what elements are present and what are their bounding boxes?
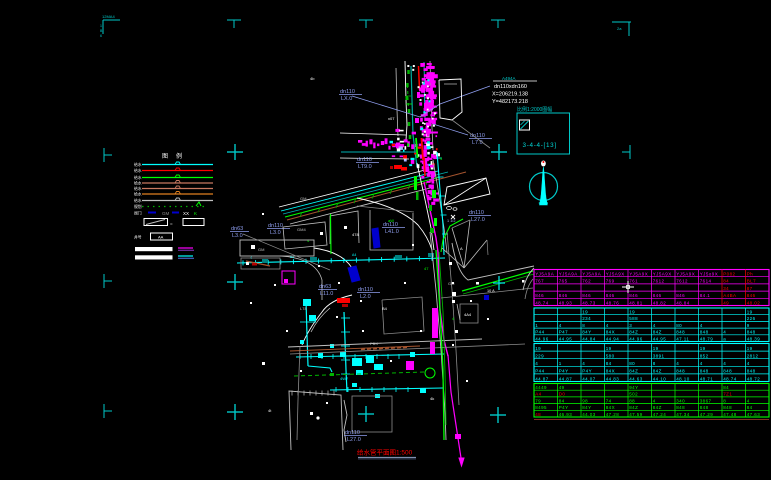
svg-text:3867: 3867 [700,398,712,403]
svg-text:94Y: 94Y [629,385,638,390]
svg-text:48.81: 48.81 [629,300,643,305]
svg-text:44.87: 44.87 [559,376,573,381]
svg-text:340: 340 [676,398,685,403]
svg-text:给水: 给水 [134,162,142,167]
svg-text:L27.0: L27.0 [347,437,361,443]
svg-text:1 1/2: 1 1/2 [447,219,455,223]
svg-text:=: = [170,221,173,226]
svg-text:848: 848 [700,405,709,410]
svg-text:4: 4 [723,361,726,366]
svg-text:47.59: 47.59 [629,412,643,417]
svg-text:7612: 7612 [653,279,665,284]
svg-text:Y=482173.218: Y=482173.218 [492,99,528,105]
svg-text:19: 19 [582,310,588,315]
svg-text:1: 1 [535,323,538,328]
svg-text:478: 478 [352,232,359,237]
svg-text:19: 19 [700,346,706,351]
svg-text:48.39: 48.39 [747,336,761,341]
svg-text:44.95: 44.95 [653,336,667,341]
svg-text:4: 4 [606,323,609,328]
svg-text:8: 8 [653,361,656,366]
svg-text:44.84: 44.84 [582,336,596,341]
svg-text:769: 769 [606,279,615,284]
svg-text:848: 848 [676,330,685,335]
svg-text:YJ5A9X: YJ5A9X [606,272,625,277]
svg-text:YJ5A9A: YJ5A9A [535,272,554,277]
svg-text:4: 4 [747,398,750,403]
svg-text:19: 19 [535,346,541,351]
svg-text:GM4: GM4 [297,227,306,232]
svg-text:48.84: 48.84 [676,300,690,305]
svg-text:12MA4: 12MA4 [102,14,115,19]
svg-text:4: 4 [582,361,585,366]
svg-text:dn110: dn110 [469,210,484,216]
svg-text:P4Y: P4Y [559,369,569,374]
svg-text:dn63: dn63 [319,284,331,290]
svg-text:4W7: 4W7 [340,376,349,381]
svg-text:BL7: BL7 [747,279,756,284]
svg-text:A4BA: A4BA [723,293,736,298]
svg-text:4k: 4k [430,396,434,401]
svg-text:K: K [194,211,197,216]
svg-text:aW: aW [388,218,394,223]
svg-text:GM: GM [300,196,306,201]
svg-text:47.63: 47.63 [747,412,761,417]
svg-text:L27.0: L27.0 [471,217,485,223]
svg-text:8: 8 [723,398,726,403]
svg-text:84: 84 [606,361,612,366]
svg-text:19: 19 [653,346,659,351]
svg-text:846: 846 [747,293,756,298]
svg-text:84Y: 84Y [582,330,591,335]
svg-text:L3.0: L3.0 [270,230,281,236]
svg-text:588: 588 [629,316,638,321]
svg-text:YJ5A9X: YJ5A9X [629,272,648,277]
svg-text:给水: 给水 [134,168,142,173]
svg-text:848: 848 [700,330,709,335]
svg-text:7614: 7614 [700,279,712,284]
svg-text:846: 846 [582,293,591,298]
svg-text:比例1:2000图幅: 比例1:2000图幅 [517,106,552,113]
svg-text:848: 848 [700,369,709,374]
svg-text:4: 4 [559,323,562,328]
svg-text:48.73: 48.73 [582,300,596,305]
svg-text:A4: A4 [535,392,541,397]
svg-text:765: 765 [559,279,568,284]
svg-text:848: 848 [747,330,756,335]
svg-text:848: 848 [676,405,685,410]
svg-text:34: 34 [723,286,729,291]
svg-text:19: 19 [629,310,635,315]
svg-text:48.71: 48.71 [700,376,714,381]
svg-text:给水: 给水 [134,198,142,203]
svg-text:229: 229 [535,354,544,359]
svg-text:44.83: 44.83 [606,376,620,381]
svg-text:井号: 井号 [134,235,142,240]
svg-text:848: 848 [723,369,732,374]
svg-text:给水: 给水 [134,181,142,186]
svg-text:44.96: 44.96 [535,336,549,341]
svg-text:规划: 规划 [134,204,142,209]
svg-text:B4: B4 [382,306,388,311]
svg-text:84: 84 [747,405,753,410]
svg-text:给水: 给水 [134,175,142,180]
svg-text:44.87: 44.87 [535,376,549,381]
svg-text:852: 852 [700,354,709,359]
svg-text:44.96: 44.96 [629,336,643,341]
svg-text:4449: 4449 [535,385,547,390]
svg-text:L11.0: L11.0 [320,291,333,297]
svg-text:98: 98 [582,398,588,403]
svg-text:X=206219.138: X=206219.138 [492,92,528,98]
svg-text:84: 84 [723,279,729,284]
svg-text:P44: P44 [535,330,544,335]
svg-text:84: 84 [559,398,565,403]
svg-text:84X: 84X [606,369,615,374]
svg-text:L2.0: L2.0 [360,294,371,300]
svg-text:762: 762 [582,279,591,284]
svg-text:44.63: 44.63 [629,376,643,381]
svg-text:YJ5A9X: YJ5A9X [676,272,695,277]
svg-text:P082: P082 [723,272,735,277]
svg-text:580: 580 [606,354,615,359]
svg-text:19: 19 [606,346,612,351]
svg-text:846: 846 [535,293,544,298]
svg-text:L78: L78 [300,306,307,311]
svg-text:48.72: 48.72 [747,376,761,381]
svg-text:D0: D0 [559,392,566,397]
svg-text:846: 846 [653,293,662,298]
svg-text:3891: 3891 [653,354,665,359]
svg-text:47.24: 47.24 [653,412,667,417]
svg-text:4: 4 [700,361,703,366]
svg-text:48.76: 48.76 [606,300,620,305]
svg-text:47: 47 [424,266,429,271]
svg-text:19: 19 [747,346,753,351]
svg-text:84: 84 [723,385,729,390]
svg-text:6: 6 [100,34,102,38]
svg-text:47.34: 47.34 [676,412,690,417]
svg-text:502: 502 [629,392,638,397]
svg-text:47.29: 47.29 [700,412,714,417]
svg-text:84X: 84X [606,330,615,335]
svg-text:84Y: 84Y [582,405,591,410]
svg-text:GM: GM [162,211,170,216]
svg-text:84Z: 84Z [629,369,638,374]
svg-text:8: 8 [582,323,585,328]
svg-text:x07: x07 [388,116,395,121]
svg-text:79: 79 [535,398,541,403]
svg-text:80: 80 [676,323,682,328]
svg-text:4: 4 [700,323,703,328]
svg-text:44.10: 44.10 [653,376,667,381]
svg-text:A494A: A494A [502,76,516,81]
svg-text:48.10: 48.10 [676,376,690,381]
svg-text:87: 87 [747,286,753,291]
svg-text:YJ5A9A: YJ5A9A [582,272,601,277]
svg-text:84X: 84X [606,405,615,410]
svg-text:47.11: 47.11 [676,336,689,341]
svg-text:A: A [460,246,463,251]
svg-text:80: 80 [629,361,635,366]
svg-text:84Z: 84Z [653,330,662,335]
svg-text:846: 846 [629,293,638,298]
svg-text:74: 74 [606,398,612,403]
svg-text:88: 88 [629,398,635,403]
svg-text:P47: P47 [559,330,568,335]
svg-text:84Z: 84Z [629,330,638,335]
svg-text:dn110: dn110 [268,223,283,229]
svg-text:44.94: 44.94 [606,336,620,341]
svg-text:dn110: dn110 [358,287,373,293]
svg-text:4: 4 [747,361,750,366]
svg-text:2812: 2812 [747,354,759,359]
svg-text:84Z: 84Z [653,405,662,410]
svg-text:84.1: 84.1 [700,293,711,298]
svg-text:44.03: 44.03 [582,412,596,417]
svg-text:L3.0: L3.0 [232,233,243,239]
svg-text:L7.0: L7.0 [472,140,483,146]
svg-text:给水: 给水 [134,192,142,197]
svg-text:GM: GM [258,247,264,252]
svg-text:dn110: dn110 [345,430,360,436]
svg-text:234: 234 [582,316,591,321]
svg-text:P44: P44 [535,369,544,374]
svg-text:48.02: 48.02 [747,300,761,305]
svg-text:LT9.0: LT9.0 [358,164,372,170]
svg-text:dn110xdn160: dn110xdn160 [494,84,527,90]
svg-text:4: 4 [676,361,679,366]
svg-text:dn110: dn110 [340,89,355,95]
svg-text:226: 226 [747,316,756,321]
svg-text:48.82: 48.82 [653,300,667,305]
svg-text:48: 48 [535,412,541,417]
svg-text:48.74: 48.74 [723,376,737,381]
svg-text:848: 848 [723,405,732,410]
svg-text:4A4: 4A4 [464,312,472,317]
svg-text:4: 4 [535,361,538,366]
svg-text:a: a [723,336,726,341]
svg-text:P4Y: P4Y [582,369,592,374]
svg-text:84Z: 84Z [653,369,662,374]
svg-text:48.93: 48.93 [559,300,573,305]
svg-text:8495: 8495 [535,405,547,410]
svg-text:4: 4 [653,398,656,403]
svg-text:19: 19 [747,310,753,315]
svg-text:4b: 4b [310,76,315,81]
svg-text:7Z1: 7Z1 [723,392,732,397]
svg-text:dn110: dn110 [470,133,485,139]
svg-text:1: 1 [100,24,102,28]
svg-text:阀门: 阀门 [134,211,142,216]
svg-text:dn63: dn63 [231,226,243,232]
svg-text:4: 4 [653,323,656,328]
svg-text:7612: 7612 [676,279,688,284]
svg-text:47.28: 47.28 [606,412,620,417]
svg-text:767: 767 [535,279,544,284]
svg-text:给水: 给水 [134,186,142,191]
svg-text:L41.0: L41.0 [385,229,399,235]
svg-text:P4Y: P4Y [559,405,569,410]
svg-text:761: 761 [629,279,638,284]
svg-text:A4: A4 [352,253,356,257]
svg-text:XX: XX [183,211,189,216]
svg-text:Ph: Ph [747,272,753,277]
svg-text:2a: 2a [617,26,622,31]
svg-text:49: 49 [559,385,565,390]
svg-text:3-4-4-[13]: 3-4-4-[13] [523,142,557,149]
svg-text:dn110: dn110 [357,157,372,163]
svg-text:47.48: 47.48 [723,412,737,417]
svg-text:848: 848 [747,369,756,374]
svg-text:46.93: 46.93 [559,412,573,417]
svg-text:846: 846 [676,293,685,298]
svg-text:44.95: 44.95 [559,336,573,341]
svg-text:4: 4 [723,330,726,335]
svg-text:1: 1 [559,361,562,366]
svg-text:YJ5o9X: YJ5o9X [700,272,718,277]
svg-text:49: 49 [723,300,729,305]
svg-text:10 A: 10 A [487,289,495,293]
svg-text:YJ5A9X: YJ5A9X [653,272,672,277]
svg-text:44.07: 44.07 [582,376,596,381]
svg-text:给水管平面图1:500: 给水管平面图1:500 [357,448,413,457]
svg-text:846: 846 [559,293,568,298]
svg-text:AA: AA [158,235,164,240]
svg-text:84Z: 84Z [629,405,638,410]
svg-text:YJ5A9A: YJ5A9A [559,272,578,277]
svg-text:图: 图 [162,153,168,160]
svg-text:848: 848 [676,369,685,374]
svg-text:48.79: 48.79 [700,336,714,341]
svg-text:LX.0: LX.0 [341,96,352,102]
svg-text:PBX: PBX [370,341,378,346]
svg-text:48.74: 48.74 [535,300,549,305]
svg-text:9: 9 [747,323,750,328]
svg-text:846: 846 [606,293,615,298]
svg-text:3: 3 [629,323,632,328]
svg-text:例: 例 [176,152,182,160]
